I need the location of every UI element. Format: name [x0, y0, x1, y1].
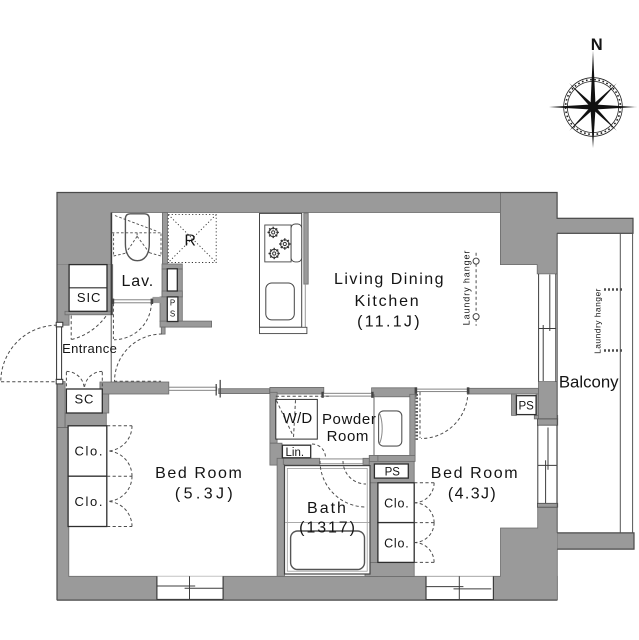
svg-text:SC: SC	[74, 392, 94, 407]
svg-text:W/D: W/D	[283, 410, 313, 427]
svg-text:Powder: Powder	[322, 411, 376, 428]
svg-text:Bath: Bath	[307, 500, 348, 517]
svg-text:Balcony: Balcony	[559, 372, 619, 391]
svg-text:N: N	[591, 36, 603, 54]
svg-text:Clo.: Clo.	[384, 497, 409, 511]
svg-text:Entrance: Entrance	[62, 341, 117, 356]
svg-text:PS: PS	[519, 400, 535, 412]
svg-text:Kitchen: Kitchen	[355, 293, 421, 310]
svg-text:Laundry hanger: Laundry hanger	[462, 250, 472, 326]
svg-text:(4.3J): (4.3J)	[448, 486, 497, 503]
svg-text:Living Dining: Living Dining	[334, 271, 445, 288]
svg-text:(1317): (1317)	[299, 520, 357, 537]
svg-text:R: R	[184, 232, 196, 249]
svg-text:Room: Room	[327, 428, 369, 445]
svg-text:(5.3J): (5.3J)	[175, 485, 236, 502]
svg-text:Clo.: Clo.	[75, 494, 105, 509]
svg-text:SIC: SIC	[77, 290, 101, 305]
svg-text:(11.1J): (11.1J)	[357, 314, 422, 331]
svg-text:Bed Room: Bed Room	[155, 465, 243, 482]
svg-text:Lin.: Lin.	[286, 447, 305, 459]
svg-text:S: S	[170, 309, 175, 318]
svg-text:Lav.: Lav.	[121, 273, 154, 290]
svg-text:Clo.: Clo.	[384, 536, 409, 550]
svg-text:Laundry hanger: Laundry hanger	[593, 288, 603, 354]
svg-text:P: P	[170, 299, 175, 308]
svg-text:PS: PS	[385, 467, 401, 479]
svg-text:Bed Room: Bed Room	[431, 465, 519, 482]
svg-text:Clo.: Clo.	[75, 444, 105, 459]
